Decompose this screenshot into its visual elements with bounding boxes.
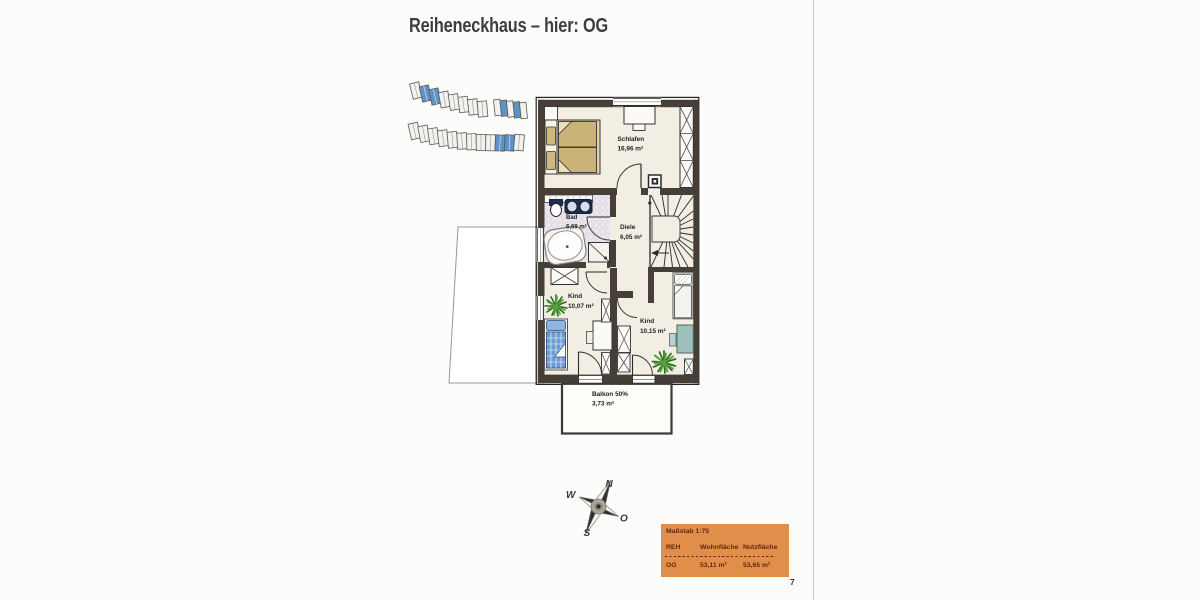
svg-text:Schlafen: Schlafen	[618, 136, 645, 143]
svg-text:Kind: Kind	[568, 293, 582, 300]
svg-text:Balkon 50%: Balkon 50%	[592, 391, 628, 398]
svg-text:W: W	[566, 490, 577, 501]
svg-text:Bad: Bad	[566, 215, 578, 221]
svg-text:S: S	[584, 528, 591, 539]
svg-text:Diele: Diele	[620, 224, 636, 231]
svg-text:O: O	[620, 514, 628, 525]
svg-text:16,96 m²: 16,96 m²	[618, 146, 644, 153]
svg-text:N: N	[606, 479, 614, 490]
svg-text:Kind: Kind	[640, 318, 654, 325]
svg-text:3,73 m²: 3,73 m²	[592, 401, 614, 408]
svg-text:6,69 m²: 6,69 m²	[566, 224, 587, 231]
svg-text:6,05 m²: 6,05 m²	[620, 234, 642, 241]
svg-text:10,07 m²: 10,07 m²	[568, 303, 594, 310]
svg-text:10,15 m²: 10,15 m²	[640, 328, 666, 335]
